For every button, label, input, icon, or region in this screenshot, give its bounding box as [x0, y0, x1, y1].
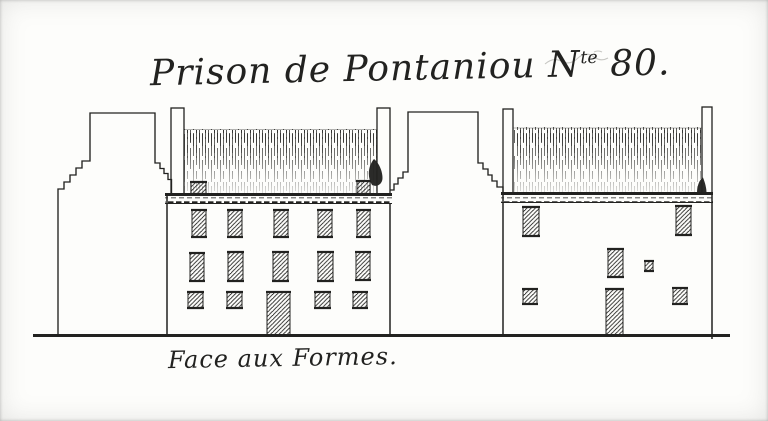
openings-layer — [187, 181, 692, 335]
left-building-window — [356, 210, 371, 237]
right-building-window — [675, 206, 692, 235]
left-building-roof-box — [190, 182, 207, 194]
title-n: N — [548, 44, 581, 86]
left-stepped-gable — [58, 113, 172, 335]
right-building-window — [607, 249, 624, 277]
left-building-window — [227, 210, 243, 237]
right-building-small-window — [522, 289, 538, 304]
right-building-small-window — [672, 288, 688, 304]
title-main: Prison de Pontaniou — [150, 45, 549, 94]
left-building-small-window — [352, 292, 368, 308]
title-superscript: te — [580, 48, 598, 68]
left-building-roof — [184, 129, 377, 194]
drawing-caption: Face aux Formes. — [168, 342, 408, 374]
right-building-window — [522, 207, 540, 236]
right-building-cornice — [501, 194, 713, 203]
left-building-window — [355, 252, 371, 280]
left-building-window — [227, 252, 244, 281]
left-building-roof-box — [356, 181, 371, 194]
right-building-left-chimney — [503, 109, 513, 193]
left-building-cornice — [165, 195, 392, 204]
left-building-door — [266, 292, 291, 335]
right-building-roof — [513, 127, 702, 193]
left-building-window — [317, 252, 334, 281]
left-building-small-window — [314, 292, 331, 308]
left-building-small-window — [187, 292, 204, 308]
middle-stepped-gable — [390, 112, 503, 193]
left-building-window — [273, 210, 289, 237]
title-number: 80. — [597, 42, 671, 85]
right-building-small-window — [644, 261, 654, 271]
scanned-drawing-paper: Prison de Pontaniou Nte 80. Face aux For… — [0, 0, 768, 421]
left-building-left-chimney — [171, 108, 184, 194]
left-building-window — [189, 253, 205, 281]
left-building-window — [272, 252, 289, 281]
left-building-window — [191, 210, 207, 237]
right-building-door — [605, 289, 624, 335]
left-building-window — [317, 210, 333, 237]
left-building-small-window — [226, 292, 243, 308]
